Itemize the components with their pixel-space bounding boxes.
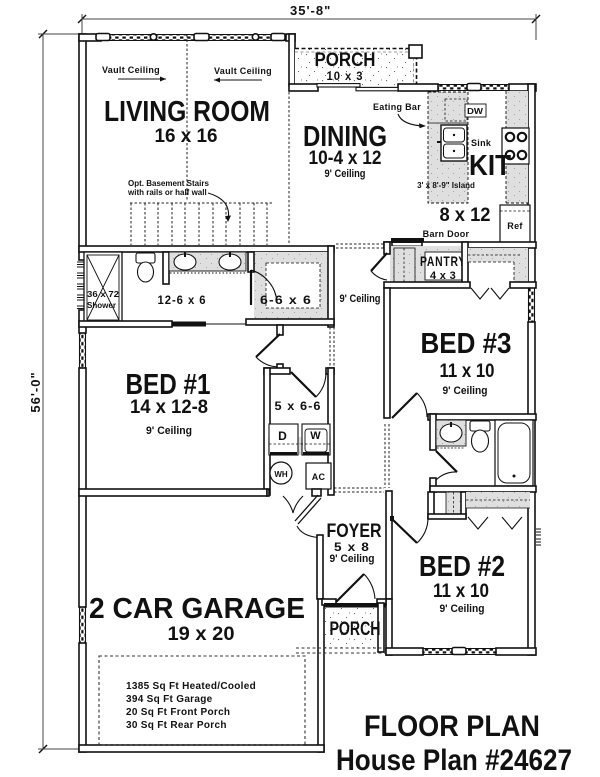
svg-text:AC: AC [312, 472, 326, 482]
svg-text:6-6 x 6: 6-6 x 6 [260, 293, 312, 307]
svg-text:11 x 10: 11 x 10 [440, 361, 495, 382]
svg-text:4 x 3: 4 x 3 [430, 270, 456, 282]
svg-text:5 x 8: 5 x 8 [334, 540, 370, 554]
svg-text:56'-0": 56'-0" [28, 371, 43, 412]
svg-text:WH: WH [274, 470, 288, 479]
svg-text:KIT: KIT [469, 150, 511, 182]
svg-text:12-6 x 6: 12-6 x 6 [158, 293, 207, 307]
svg-text:11 x 10: 11 x 10 [433, 581, 489, 602]
svg-text:9' Ceiling: 9' Ceiling [146, 425, 192, 437]
svg-text:PANTRY: PANTRY [420, 253, 466, 269]
svg-text:9' Ceiling: 9' Ceiling [340, 293, 381, 305]
svg-text:9' Ceiling: 9' Ceiling [325, 168, 366, 180]
svg-text:BED #2: BED #2 [419, 551, 505, 583]
svg-text:W: W [310, 430, 321, 442]
svg-text:9' Ceiling: 9' Ceiling [440, 603, 485, 615]
svg-text:3' x 8'-9" Island: 3' x 8'-9" Island [417, 181, 475, 190]
svg-text:19 x 20: 19 x 20 [168, 624, 235, 645]
svg-text:35'-8": 35'-8" [290, 3, 331, 18]
svg-text:Eating Bar: Eating Bar [373, 102, 421, 112]
svg-text:Shower: Shower [87, 301, 116, 310]
svg-text:Sink: Sink [471, 138, 492, 148]
svg-text:9' Ceiling: 9' Ceiling [443, 385, 488, 397]
svg-text:D: D [278, 429, 288, 443]
svg-text:20 Sq Ft Front Porch: 20 Sq Ft Front Porch [126, 707, 230, 718]
svg-text:Vault Ceiling: Vault Ceiling [214, 66, 272, 76]
svg-text:14 x 12-8: 14 x 12-8 [130, 397, 208, 418]
svg-text:FOYER: FOYER [327, 521, 382, 542]
svg-text:10 x 3: 10 x 3 [327, 69, 364, 83]
svg-text:2 CAR GARAGE: 2 CAR GARAGE [89, 593, 305, 625]
svg-text:8 x 12: 8 x 12 [440, 205, 491, 226]
svg-text:9' Ceiling: 9' Ceiling [330, 553, 375, 565]
svg-text:House Plan #24627: House Plan #24627 [336, 744, 572, 777]
svg-text:30 Sq Ft Rear Porch: 30 Sq Ft Rear Porch [126, 720, 227, 731]
svg-text:Barn Door: Barn Door [423, 229, 470, 239]
svg-text:PORCH: PORCH [315, 50, 376, 71]
svg-text:BED #3: BED #3 [421, 328, 512, 360]
svg-text:16 x 16: 16 x 16 [155, 126, 218, 147]
svg-text:10-4 x 12: 10-4 x 12 [309, 148, 382, 169]
svg-text:5 x 6-6: 5 x 6-6 [275, 399, 322, 413]
svg-text:Vault Ceiling: Vault Ceiling [102, 65, 160, 75]
svg-text:PORCH: PORCH [330, 619, 381, 640]
svg-text:Opt. Basement Stairs: Opt. Basement Stairs [128, 179, 209, 188]
svg-text:Ref: Ref [507, 221, 523, 231]
svg-text:FLOOR PLAN: FLOOR PLAN [364, 710, 540, 743]
svg-text:36 x 72: 36 x 72 [87, 290, 120, 299]
svg-text:394 Sq Ft Garage: 394 Sq Ft Garage [126, 694, 213, 705]
svg-text:1385 Sq Ft Heated/Cooled: 1385 Sq Ft Heated/Cooled [126, 681, 256, 692]
svg-text:with rails or half wall: with rails or half wall [127, 188, 207, 197]
svg-text:DW: DW [467, 107, 484, 116]
svg-text:LIVING ROOM: LIVING ROOM [104, 96, 270, 128]
